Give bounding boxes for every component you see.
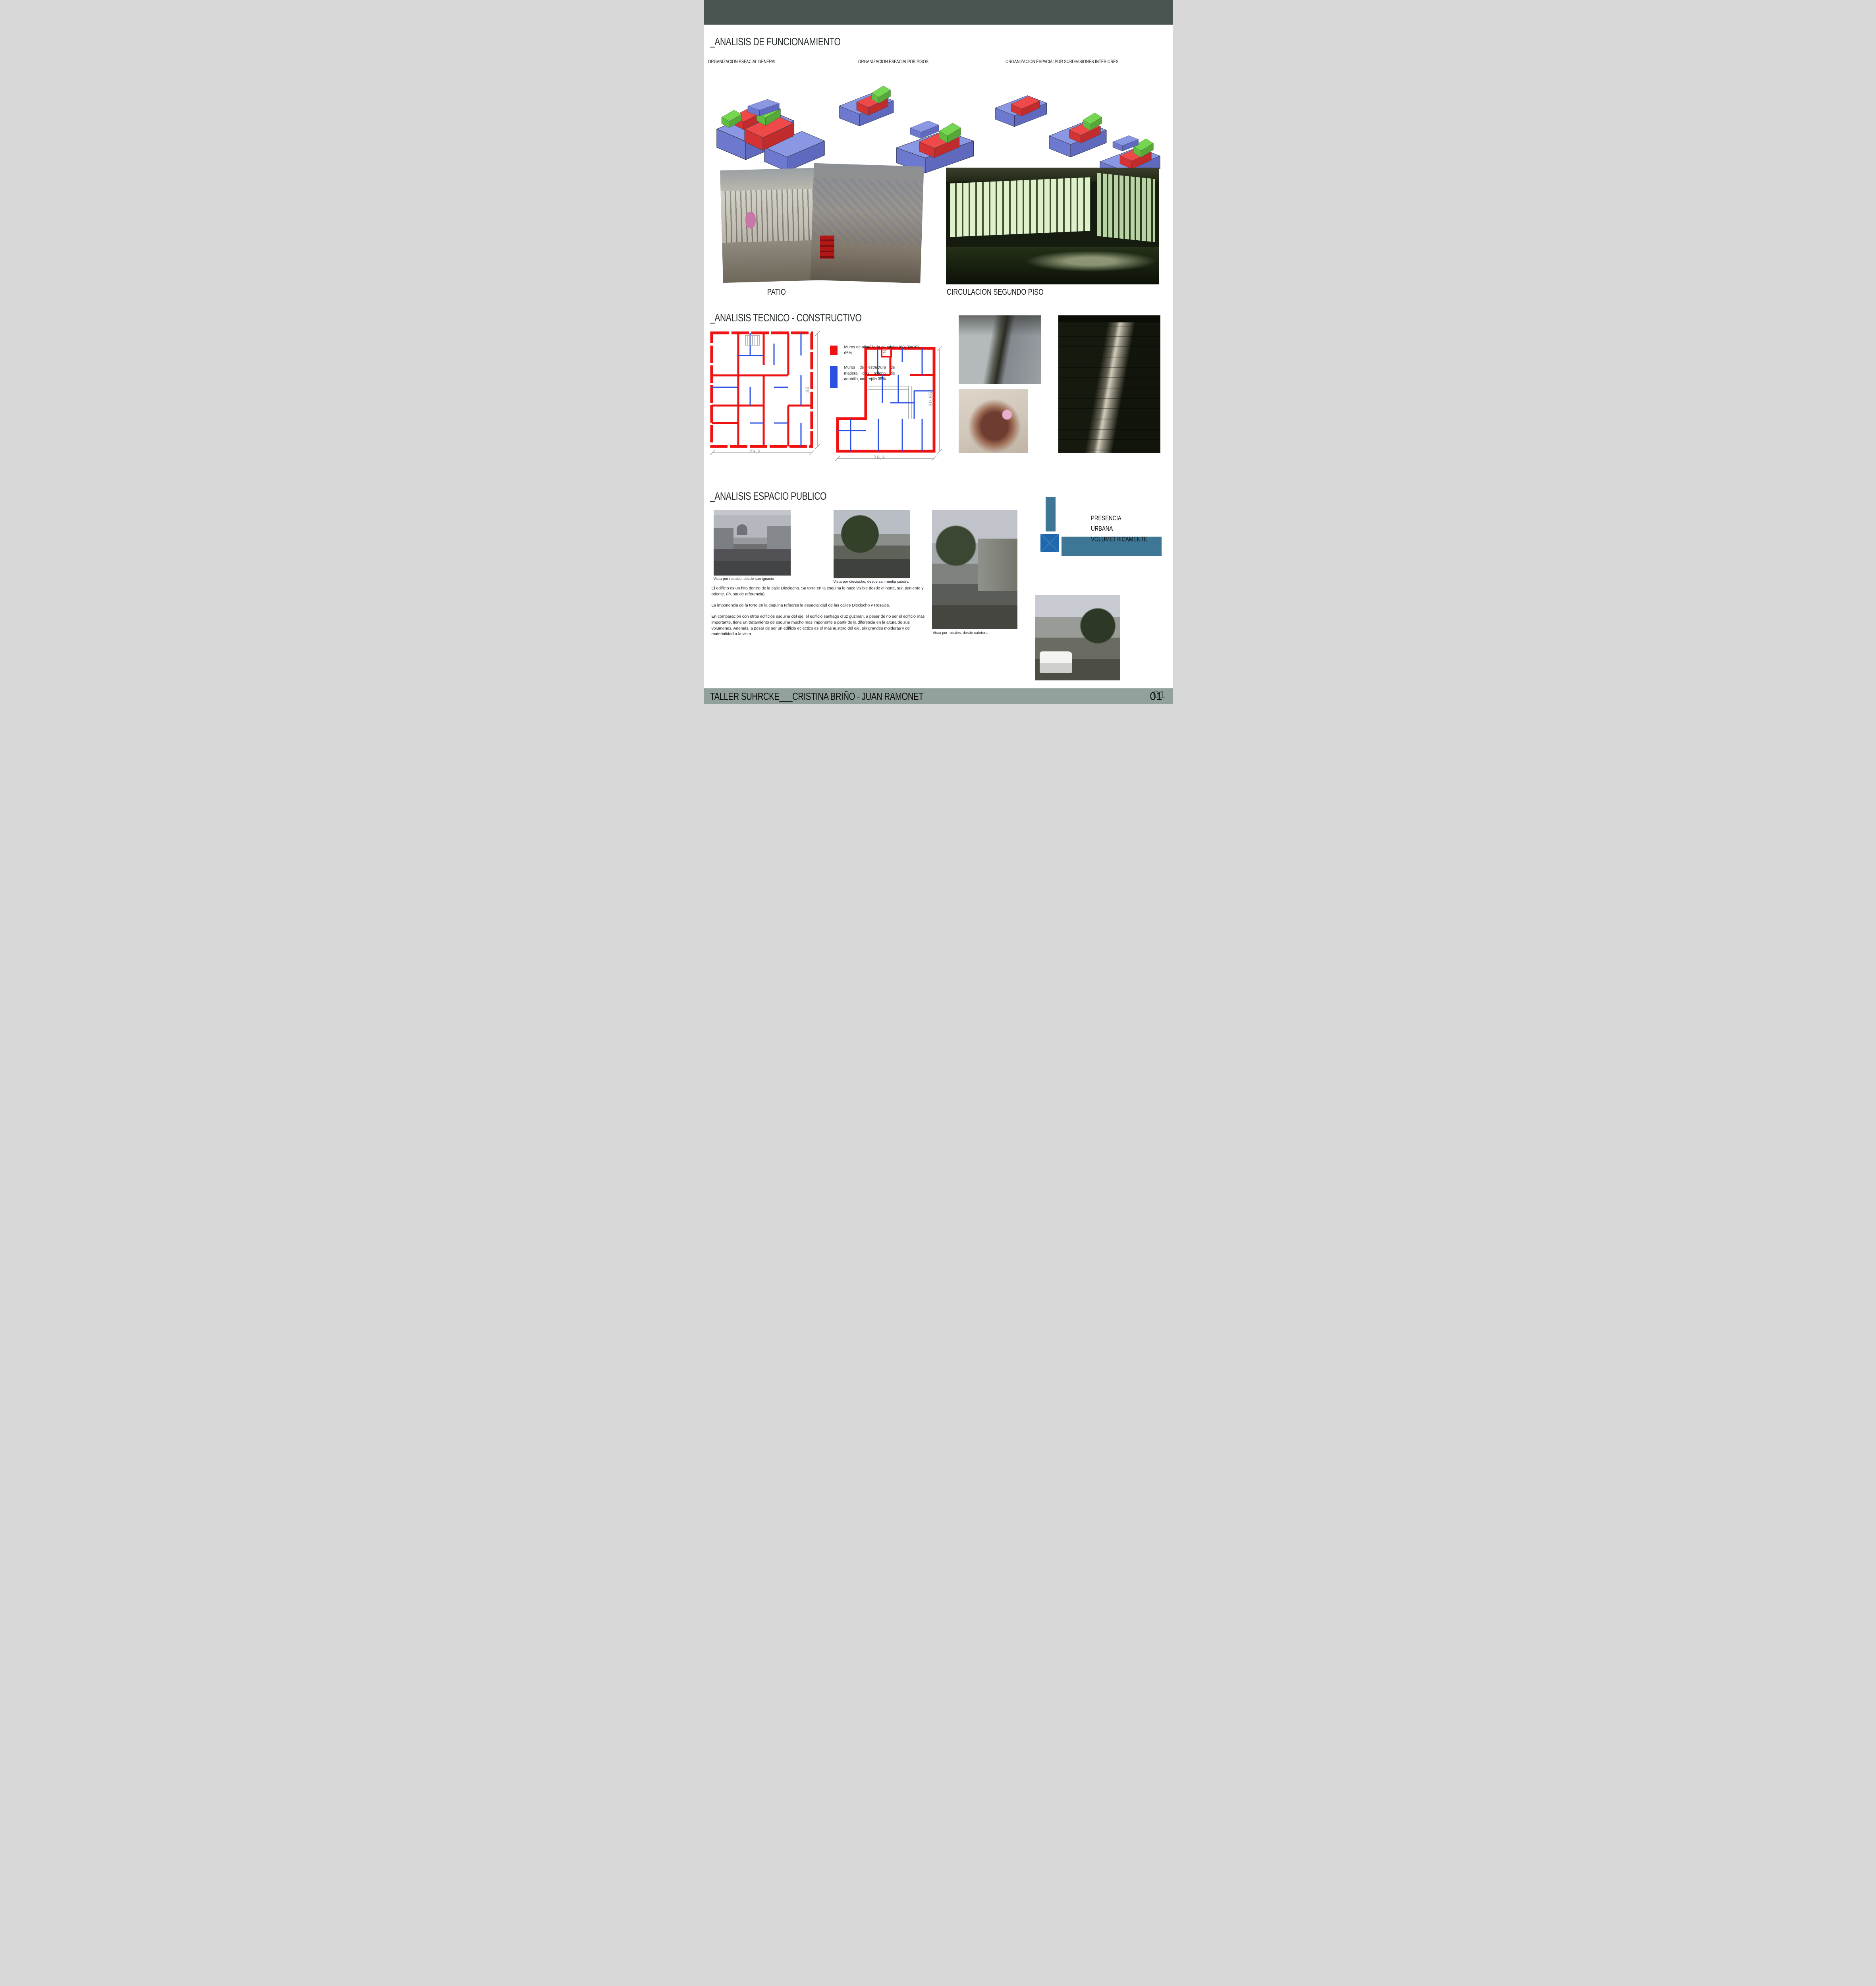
axon-diagram-pisos xyxy=(837,68,980,172)
wall-deterioration-photo-1 xyxy=(959,315,1041,384)
plan2-width-dimension: 29,3 xyxy=(874,454,885,460)
top-header-bar xyxy=(704,0,1173,25)
urban-volume-vertical-bar xyxy=(1046,497,1056,531)
photo-detail xyxy=(978,539,1017,591)
patio-photo-crates-detail xyxy=(820,236,834,259)
floor-plan-1-drawing xyxy=(710,331,829,462)
paragraph-2: La imponencia de la torre en la esquina … xyxy=(712,603,930,609)
photo-detail xyxy=(934,520,978,572)
callout-line: URBANA xyxy=(1091,524,1113,534)
legend-item-adobe: Muros de albañilería en adobe (60x30x10)… xyxy=(830,345,922,356)
axon-diagram-general xyxy=(710,70,829,169)
red-swatch-icon xyxy=(830,346,838,355)
x-cross-icon xyxy=(1040,534,1059,552)
paragraph-1: El edificio es un hito dentro de la call… xyxy=(712,585,930,597)
plan1-width-dimension: 29,3 xyxy=(749,448,761,454)
photo-detail xyxy=(737,524,747,535)
footer-credits: TALLER SUHRCKE___CRISTINA BRIÑO - JUAN R… xyxy=(710,688,984,704)
urban-volume-x-square xyxy=(1040,534,1059,552)
section-title-funcionamiento: _ANALISIS DE FUNCIONAMIENTO xyxy=(710,36,877,48)
street-photo-dieciocho xyxy=(834,510,910,578)
diagram-label-subdivisiones: ORGANIZACION ESPACIALPOR SUBDIVISIONES I… xyxy=(1006,60,1140,64)
paragraph-3: En comparación con otros edificios esqui… xyxy=(712,614,930,638)
second-floor-circulation-photo xyxy=(946,168,1159,284)
wall-deterioration-photo-2 xyxy=(959,389,1028,453)
wood-structure-photo xyxy=(1058,315,1160,453)
patio-label: PATIO xyxy=(767,288,791,297)
section-title-text: _ANALISIS DE FUNCIONAMIENTO xyxy=(710,36,840,48)
photo-detail xyxy=(1097,173,1155,242)
patio-photo-cloth-detail xyxy=(745,212,756,228)
blue-swatch-icon xyxy=(830,366,838,388)
patio-photo-right xyxy=(810,163,924,284)
street-photo-rosales-caletera xyxy=(932,510,1017,629)
street-photo-corner xyxy=(1035,595,1120,680)
diagram-label-pisos: ORGANIZACION ESPACIALPOR PISOS xyxy=(858,60,942,64)
photo-detail xyxy=(950,178,1090,238)
page-number: 01 01 xyxy=(1150,688,1162,704)
photo-detail-van xyxy=(1040,651,1072,673)
photo-detail xyxy=(1077,604,1118,648)
floor-plan-1: 36 29,3 xyxy=(710,331,829,462)
plan1-height-dimension: 36 xyxy=(804,386,810,392)
wall-materials-legend: Muros de albañilería en adobe (60x30x10)… xyxy=(830,345,922,391)
analysis-text-block: El edificio es un hito dentro de la call… xyxy=(712,585,930,642)
circulation-label: CIRCULACION SEGUNDO PISO xyxy=(947,288,1071,297)
photo-detail xyxy=(946,247,1159,284)
street-photo-rosales-san-ignacio xyxy=(714,510,791,576)
section-title-publico: _ANALISIS ESPACIO PUBLICO xyxy=(710,490,859,502)
footer-bar: TALLER SUHRCKE___CRISTINA BRIÑO - JUAN R… xyxy=(704,688,1173,704)
photo-detail xyxy=(767,526,790,549)
section-title-tecnico: _ANALISIS TECNICO - CONSTRUCTIVO xyxy=(710,312,904,324)
legend-label: Muros de albañilería en adobe (60x30x10)… xyxy=(844,345,922,356)
patio-photo-collage xyxy=(722,165,922,284)
plan2-height-dimension: 30,85 xyxy=(927,392,933,407)
page-number-value: 01 xyxy=(1150,690,1162,702)
diagram-label-general: ORGANIZACION ESPACIAL GENERAL xyxy=(708,60,789,64)
legend-label: Muros de estructura de madera con rellen… xyxy=(844,365,895,383)
callout-line: PRESENCIA xyxy=(1091,513,1121,524)
street-photo-2-caption: Vista por dieciocho, desde san media cua… xyxy=(834,580,909,584)
urban-presence-callout: PRESENCIA URBANA VOLUMETRICAMENTE xyxy=(1091,513,1173,545)
street-photo-1-caption: Vista por rosales, desde san ignacio xyxy=(714,577,774,581)
axon-diagram-subdivisiones xyxy=(994,68,1168,178)
legend-item-madera: Muros de estructura de madera con rellen… xyxy=(830,365,922,383)
photo-detail xyxy=(836,513,884,555)
callout-line: VOLUMETRICAMENTE xyxy=(1091,534,1147,545)
street-photo-3-caption: Vista por rosales, desde caletera. xyxy=(933,631,989,635)
poster-page: _ANALISIS DE FUNCIONAMIENTO ORGANIZACION… xyxy=(704,0,1173,704)
photo-detail xyxy=(714,528,733,549)
